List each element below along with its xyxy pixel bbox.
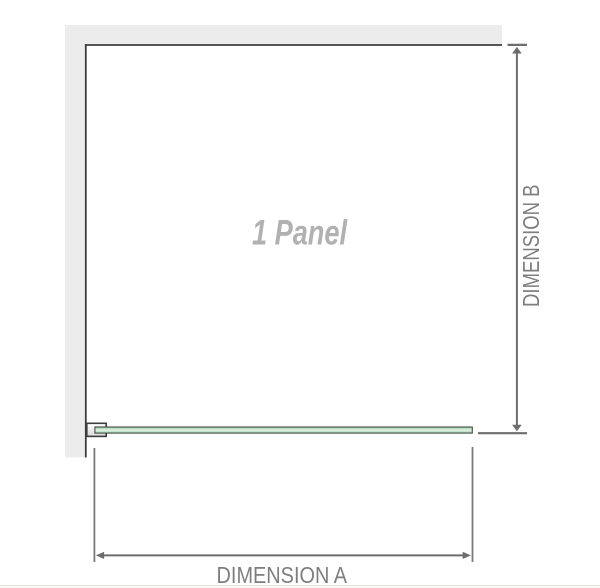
svg-text:DIMENSION A: DIMENSION A: [217, 562, 348, 588]
svg-text:1 Panel: 1 Panel: [252, 214, 348, 253]
svg-text:DIMENSION B: DIMENSION B: [518, 184, 544, 307]
